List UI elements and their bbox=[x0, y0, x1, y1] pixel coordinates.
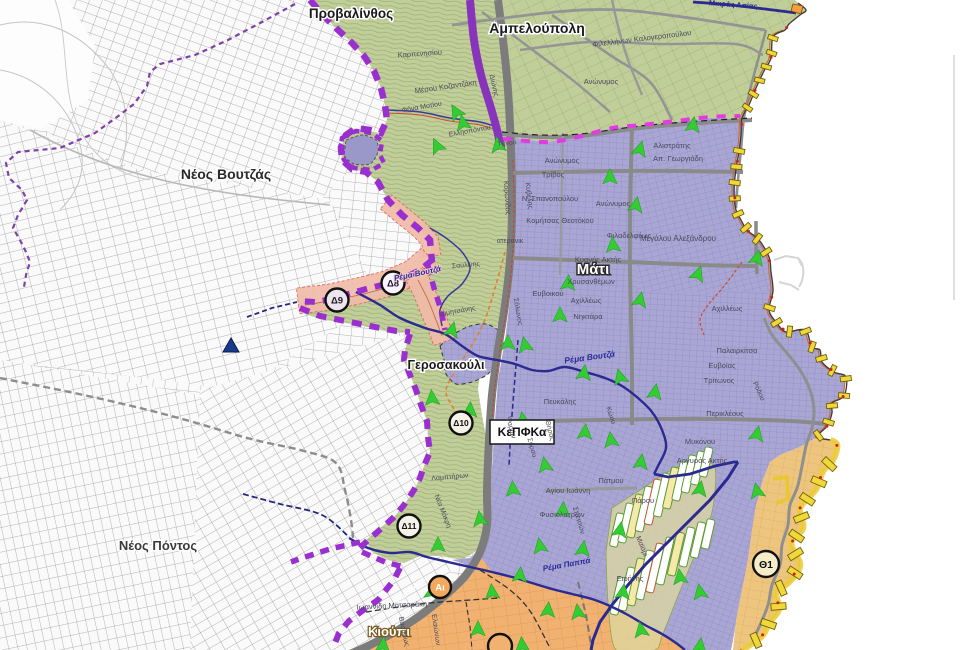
svg-text:Προβαλίνθος: Προβαλίνθος bbox=[309, 6, 393, 21]
svg-text:Τρίβος: Τρίβος bbox=[542, 170, 565, 179]
svg-text:Πευκάλης: Πευκάλης bbox=[544, 397, 577, 406]
svg-text:Πάρου: Πάρου bbox=[632, 496, 654, 505]
svg-text:Κομήτσας Θεοτόκου: Κομήτσας Θεοτόκου bbox=[526, 216, 593, 225]
svg-text:Αργυράς Ακτής: Αργυράς Ακτής bbox=[677, 456, 728, 465]
svg-text:Ανώνυμος: Ανώνυμος bbox=[584, 77, 619, 86]
svg-text:Περικλέους: Περικλέους bbox=[706, 409, 744, 418]
svg-text:Ειρήνης: Ειρήνης bbox=[617, 574, 644, 583]
svg-text:Αγίου Ιωάννη: Αγίου Ιωάννη bbox=[546, 486, 591, 495]
svg-text:Αι: Αι bbox=[435, 582, 445, 593]
svg-text:Κυανής Ακτής: Κυανής Ακτής bbox=[575, 255, 622, 264]
svg-text:Αχιλλέως: Αχιλλέως bbox=[571, 296, 602, 305]
svg-text:Πάτμου: Πάτμου bbox=[598, 476, 623, 485]
svg-text:Νέος Πόντος: Νέος Πόντος bbox=[119, 538, 198, 553]
svg-text:Θ1: Θ1 bbox=[759, 559, 773, 571]
svg-text:Αμπελούπολη: Αμπελούπολη bbox=[489, 20, 585, 36]
svg-text:Μυκόνου: Μυκόνου bbox=[685, 437, 715, 446]
svg-text:Ανώνυμος: Ανώνυμος bbox=[596, 199, 631, 208]
svg-text:Χρυσανθέμων: Χρυσανθέμων bbox=[567, 277, 615, 286]
svg-text:Ανώνυμος: Ανώνυμος bbox=[545, 156, 580, 165]
svg-text:Νηκτάρα: Νηκτάρα bbox=[573, 312, 603, 321]
svg-text:Αχιλλέως: Αχιλλέως bbox=[712, 304, 743, 313]
svg-text:Νέος Βουτζάς: Νέος Βουτζάς bbox=[181, 166, 271, 182]
svg-text:Γεροσακούλι: Γεροσακούλι bbox=[408, 358, 485, 372]
svg-text:Δ9: Δ9 bbox=[331, 295, 343, 306]
svg-text:Τρίτωνος: Τρίτωνος bbox=[704, 376, 735, 385]
svg-text:Δ11: Δ11 bbox=[401, 521, 416, 531]
svg-text:ατερανικ: ατερανικ bbox=[497, 238, 524, 245]
svg-text:Παλαιρκίτσα: Παλαιρκίτσα bbox=[717, 346, 759, 355]
svg-text:Ευβοικού: Ευβοικού bbox=[532, 289, 563, 298]
svg-text:Δ10: Δ10 bbox=[453, 418, 469, 428]
svg-text:Απ. Γεωργιάδη: Απ. Γεωργιάδη bbox=[653, 154, 703, 163]
svg-text:ΚεΠΦΚα: ΚεΠΦΚα bbox=[498, 425, 547, 439]
svg-text:Αλιστράτης: Αλιστράτης bbox=[653, 141, 691, 150]
svg-text:Μεγάλου Αλεξάνδρου: Μεγάλου Αλεξάνδρου bbox=[640, 234, 716, 243]
svg-text:Ευβοίας: Ευβοίας bbox=[708, 361, 736, 370]
